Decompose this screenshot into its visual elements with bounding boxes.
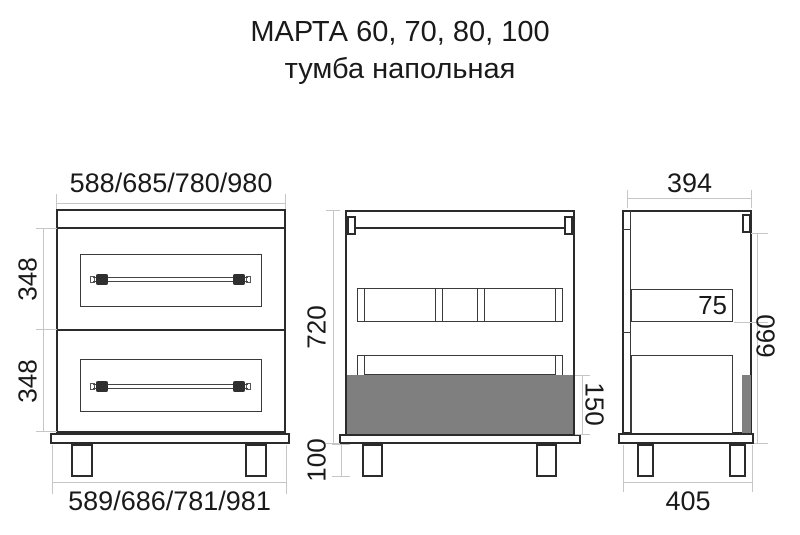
front-drawer-divider [56, 329, 286, 331]
facade-joint [622, 229, 631, 230]
extension-line [332, 476, 350, 477]
extension-line [752, 445, 753, 492]
dimension-line [341, 444, 342, 477]
side-drawer-box [631, 355, 733, 434]
extension-line [575, 375, 590, 376]
extension-line [326, 210, 340, 211]
corner-bracket-left [347, 216, 356, 235]
dim-drawer1-height: 348 [13, 257, 44, 300]
handle-mount-right [233, 274, 245, 285]
extension-line [332, 444, 350, 445]
handle-mount-left [96, 381, 108, 392]
side-leg-left [637, 444, 654, 477]
side-plinth [618, 433, 754, 444]
front-top-panel-line [56, 227, 286, 229]
dimension-line [623, 482, 753, 483]
corner-bracket [742, 214, 751, 233]
handle-mount-right [233, 381, 245, 392]
dim-drawer-box-height: 150 [579, 382, 610, 425]
dim-leg-height: 100 [302, 438, 333, 481]
back-panel-fill [742, 375, 751, 435]
extension-line [36, 329, 57, 330]
dimension-line [56, 203, 286, 204]
section-leg-left [362, 444, 383, 477]
rail-post [435, 288, 443, 322]
rail-post [555, 355, 563, 376]
rail-post [357, 355, 365, 376]
rail-post [357, 288, 365, 322]
dim-front-width-top: 588/685/780/980 [46, 168, 296, 199]
extension-line [575, 434, 590, 435]
dim-side-height: 660 [751, 314, 782, 357]
section-leg-right [536, 444, 557, 477]
rail-post [477, 288, 485, 322]
dimension-line [333, 210, 334, 444]
page-title: МАРТА 60, 70, 80, 100 [0, 14, 800, 51]
section-plinth [339, 434, 581, 444]
dim-front-width-bottom: 589/686/781/981 [42, 486, 297, 517]
front-leg-right [245, 444, 267, 477]
dim-depth-bottom: 405 [623, 486, 753, 517]
drawing-sheet: МАРТА 60, 70, 80, 100 тумба напольная [0, 0, 800, 535]
facade-joint [622, 332, 631, 333]
handle-bar [93, 277, 248, 282]
dim-rail-height: 75 [698, 290, 727, 320]
dim-depth-top: 394 [627, 168, 752, 199]
corner-bracket-right [564, 216, 573, 235]
extension-line [754, 443, 768, 444]
side-middle-rail: 75 [631, 289, 733, 322]
handle-bar [93, 384, 248, 389]
side-leg-right [729, 444, 746, 477]
drawer-box-fill [347, 375, 573, 434]
front-leg-left [71, 444, 93, 477]
dim-body-height: 720 [302, 305, 333, 348]
page-subtitle: тумба напольная [0, 53, 800, 86]
rail-post [555, 288, 563, 322]
middle-rail [357, 288, 563, 322]
front-plinth [50, 433, 290, 444]
extension-line [36, 431, 57, 432]
dimension-line [52, 482, 287, 483]
extension-line [751, 233, 768, 234]
top-rail-line [355, 227, 565, 229]
extension-line [623, 445, 624, 492]
extension-line [36, 228, 57, 229]
dim-drawer2-height: 348 [13, 359, 44, 402]
handle-mount-left [96, 274, 108, 285]
lower-rail [357, 355, 563, 375]
